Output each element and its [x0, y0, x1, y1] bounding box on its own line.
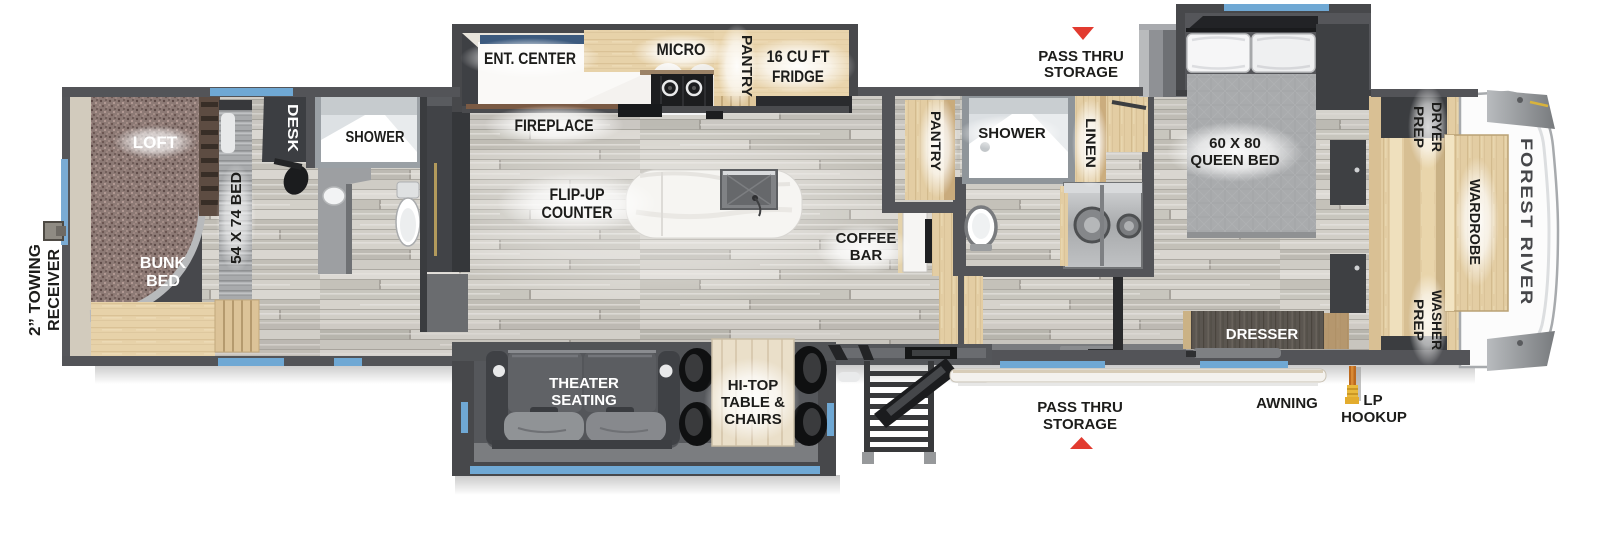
svg-text:FIREPLACE: FIREPLACE [515, 116, 594, 135]
svg-text:TABLE &: TABLE & [721, 394, 785, 411]
svg-text:CHAIRS: CHAIRS [724, 411, 782, 428]
svg-text:LP: LP [1363, 392, 1382, 409]
svg-text:BAR: BAR [850, 247, 883, 264]
svg-text:60 X 80: 60 X 80 [1209, 135, 1261, 152]
svg-text:FRIDGE: FRIDGE [772, 67, 824, 86]
svg-text:AWNING: AWNING [1256, 395, 1318, 412]
svg-text:16 CU FT: 16 CU FT [767, 47, 831, 66]
svg-text:THEATER: THEATER [549, 375, 619, 392]
svg-text:STORAGE: STORAGE [1043, 416, 1117, 433]
svg-text:PREP: PREP [1411, 106, 1427, 148]
svg-text:LOFT: LOFT [133, 133, 178, 152]
svg-text:PREP: PREP [1411, 299, 1427, 341]
svg-text:LINEN: LINEN [1083, 118, 1099, 168]
svg-text:STORAGE: STORAGE [1044, 64, 1118, 81]
svg-text:BUNK: BUNK [140, 255, 187, 272]
svg-text:FOREST RIVER: FOREST RIVER [1517, 138, 1536, 306]
svg-text:DRYER: DRYER [1429, 102, 1445, 152]
svg-text:PANTRY: PANTRY [928, 111, 944, 172]
svg-text:2” TOWING: 2” TOWING [27, 244, 44, 336]
svg-text:BED: BED [146, 273, 180, 290]
svg-text:RECEIVER: RECEIVER [46, 249, 63, 331]
svg-text:HOOKUP: HOOKUP [1341, 409, 1407, 426]
svg-text:WARDROBE: WARDROBE [1466, 179, 1483, 265]
svg-text:54 X 74 BED: 54 X 74 BED [228, 172, 245, 264]
svg-text:WASHER: WASHER [1429, 290, 1445, 350]
svg-text:HI-TOP: HI-TOP [728, 377, 779, 394]
svg-text:DESK: DESK [284, 104, 301, 152]
svg-text:PASS THRU: PASS THRU [1038, 48, 1124, 65]
svg-text:COUNTER: COUNTER [542, 203, 613, 222]
svg-text:SEATING: SEATING [551, 392, 617, 409]
svg-text:DRESSER: DRESSER [1226, 326, 1299, 343]
svg-text:QUEEN BED: QUEEN BED [1190, 152, 1279, 169]
svg-text:SHOWER: SHOWER [978, 125, 1046, 142]
svg-text:PANTRY: PANTRY [738, 35, 755, 97]
svg-text:MICRO: MICRO [657, 40, 706, 59]
svg-text:ENT. CENTER: ENT. CENTER [484, 49, 576, 68]
svg-text:COFFEE: COFFEE [836, 230, 897, 247]
svg-text:FLIP-UP: FLIP-UP [550, 185, 605, 204]
svg-text:SHOWER: SHOWER [346, 129, 405, 146]
svg-text:PASS THRU: PASS THRU [1037, 399, 1123, 416]
